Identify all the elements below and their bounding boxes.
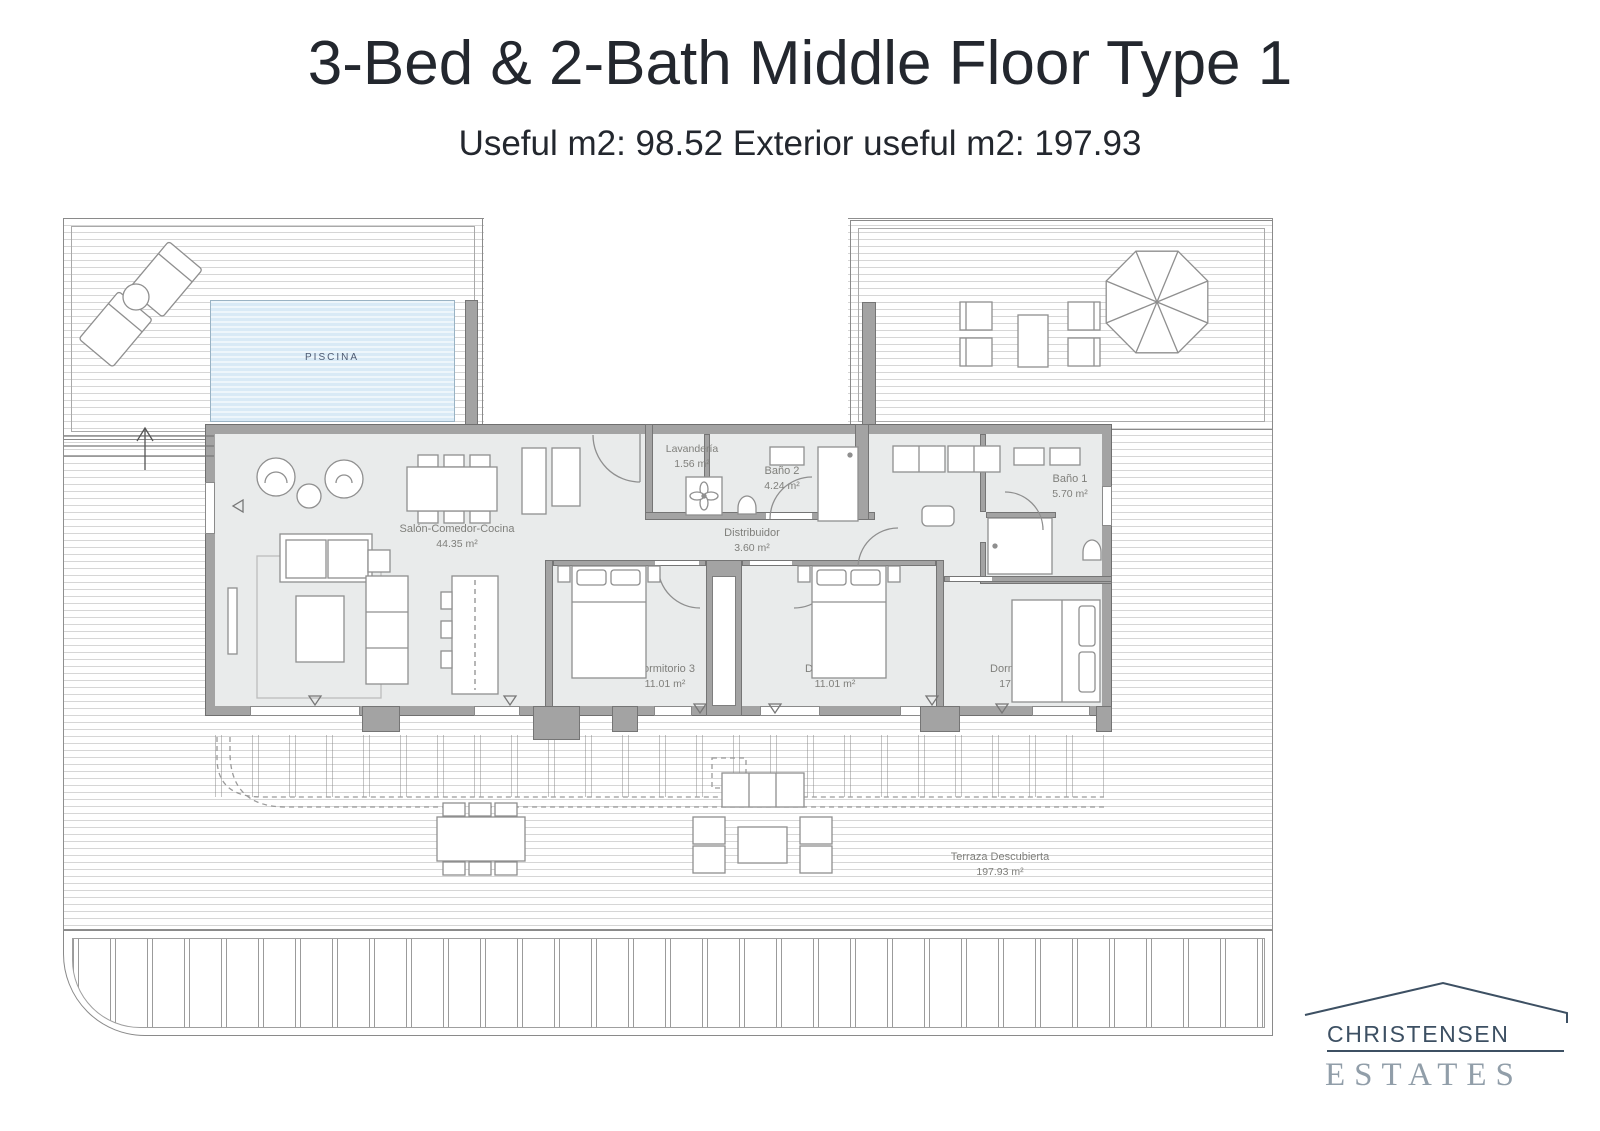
label-bano2-name: Baño 2 <box>764 464 800 479</box>
door-gap-bed3 <box>655 561 699 565</box>
label-dormitorio1-area: 17.06 m² <box>990 677 1050 692</box>
window-living-west <box>205 482 215 534</box>
party-wall-right <box>862 302 876 426</box>
pergola-posts <box>215 735 1105 797</box>
label-terraza-name: Terraza Descubierta <box>951 850 1049 865</box>
wall-bed2-right <box>936 560 944 716</box>
page-subtitle: Useful m2: 98.52 Exterior useful m2: 197… <box>0 124 1600 164</box>
door-gap-bed1 <box>950 577 992 581</box>
terrace-gap <box>484 208 848 424</box>
label-dormitorio3: Dormitorio 3 11.01 m² <box>635 662 695 692</box>
pillar-2 <box>533 706 580 740</box>
page-title: 3-Bed & 2-Bath Middle Floor Type 1 <box>0 28 1600 99</box>
door-gap-bed2 <box>750 561 792 565</box>
window-bed1 <box>1032 706 1090 716</box>
window-living-2 <box>474 706 520 716</box>
label-bano1: Baño 1 5.70 m² <box>1052 472 1088 502</box>
label-bano1-area: 5.70 m² <box>1052 487 1088 502</box>
label-salon-name: Salón-Comedor-Cocina <box>400 522 515 537</box>
pillar-4 <box>920 706 960 732</box>
wall-laundry-left <box>645 424 653 520</box>
logo-rule <box>1327 1050 1564 1052</box>
window-living-1 <box>250 706 360 716</box>
window-bed2 <box>760 706 820 716</box>
pillar-5 <box>1096 706 1112 732</box>
pillar-1 <box>362 706 400 732</box>
label-distribuidor-area: 3.60 m² <box>724 541 780 556</box>
label-bano2-area: 4.24 m² <box>764 479 800 494</box>
wall-shower1 <box>986 512 1056 518</box>
label-salon: Salón-Comedor-Cocina 44.35 m² <box>400 522 515 552</box>
party-wall-left <box>465 300 478 426</box>
window-bed3 <box>654 706 692 716</box>
shaft <box>712 576 736 706</box>
label-terraza-area: 197.93 m² <box>951 865 1049 880</box>
door-gap-bath2 <box>766 513 812 519</box>
right-terrace-inner-border <box>858 228 1265 422</box>
label-lavanderia-name: Lavandería <box>666 442 719 457</box>
label-terraza: Terraza Descubierta 197.93 m² <box>951 850 1049 880</box>
wall-bath1-left-upper <box>980 434 986 512</box>
label-dormitorio2-name: Dormitorio 2 <box>805 662 865 677</box>
brand-logo: CHRISTENSEN ESTATES <box>1285 955 1585 1105</box>
floor-plan-page: 3-Bed & 2-Bath Middle Floor Type 1 Usefu… <box>0 0 1600 1131</box>
label-dormitorio2-area: 11.01 m² <box>805 677 865 692</box>
pool-label: PISCINA <box>305 352 359 363</box>
wall-vestibule-left <box>855 424 869 520</box>
lower-planter-stripes <box>72 938 1265 1028</box>
label-salon-area: 44.35 m² <box>400 537 515 552</box>
label-dormitorio3-name: Dormitorio 3 <box>635 662 695 677</box>
label-bano2: Baño 2 4.24 m² <box>764 464 800 494</box>
label-distribuidor-name: Distribuidor <box>724 526 780 541</box>
wall-bath2-bottom <box>645 512 875 520</box>
label-lavanderia: Lavandería 1.56 m² <box>666 442 719 472</box>
label-lavanderia-area: 1.56 m² <box>666 457 719 472</box>
label-bano1-name: Baño 1 <box>1052 472 1088 487</box>
pillar-3 <box>612 706 638 732</box>
label-dormitorio1-name: Dormitorio 1 <box>990 662 1050 677</box>
window-bath1-east <box>1102 486 1112 526</box>
logo-name: CHRISTENSEN <box>1327 1021 1565 1048</box>
label-distribuidor: Distribuidor 3.60 m² <box>724 526 780 556</box>
label-dormitorio2: Dormitorio 2 11.01 m² <box>805 662 865 692</box>
logo-estates: ESTATES <box>1325 1057 1575 1094</box>
wall-bed3-left <box>545 560 553 716</box>
label-dormitorio3-area: 11.01 m² <box>635 677 695 692</box>
label-dormitorio1: Dormitorio 1 17.06 m² <box>990 662 1050 692</box>
